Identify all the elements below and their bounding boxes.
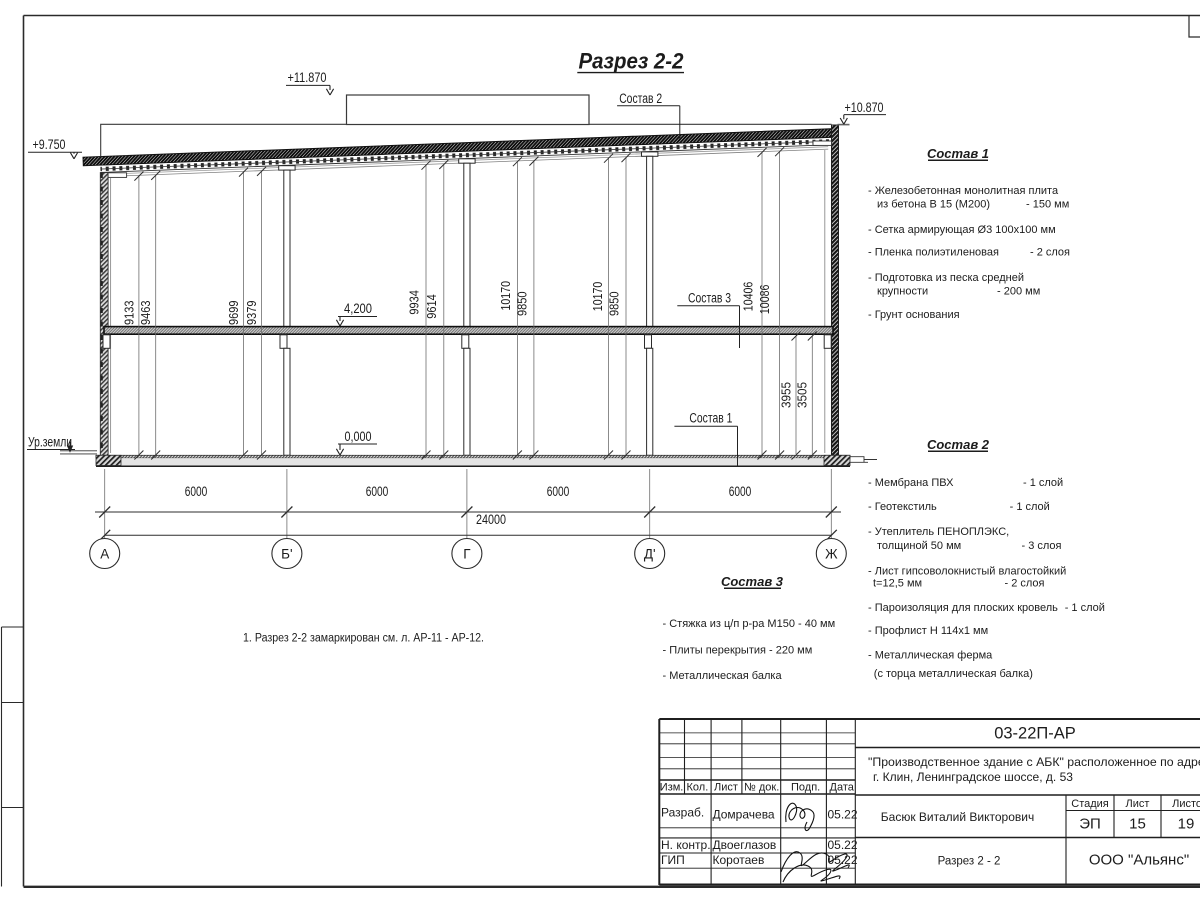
svg-text:Коротаев: Коротаев [713, 853, 765, 867]
svg-text:Стадия: Стадия [1071, 798, 1109, 810]
svg-text:- Металлическая ферма: - Металлическая ферма [868, 649, 993, 661]
svg-text:из бетона В 15 (М200): из бетона В 15 (М200) [877, 199, 990, 211]
svg-text:+10.870: +10.870 [845, 100, 884, 115]
svg-text:05.22: 05.22 [828, 838, 858, 852]
svg-text:- Профлист Н 114х1 мм: - Профлист Н 114х1 мм [868, 625, 988, 637]
svg-text:Лист: Лист [714, 782, 738, 794]
svg-text:10406: 10406 [741, 282, 756, 312]
svg-text:Состав 1: Состав 1 [927, 146, 989, 161]
svg-text:Подп.: Подп. [791, 782, 820, 794]
svg-text:9850: 9850 [515, 292, 530, 317]
svg-text:- 2 слоя: - 2 слоя [1030, 247, 1070, 259]
svg-text:- Пароизоляция для плоских кро: - Пароизоляция для плоских кровель [868, 602, 1058, 614]
svg-text:9699: 9699 [226, 301, 241, 326]
svg-text:9379: 9379 [244, 301, 259, 326]
svg-text:Изм.: Изм. [660, 782, 684, 794]
svg-text:Состав 1: Состав 1 [689, 410, 732, 425]
svg-text:Ж: Ж [825, 547, 838, 562]
svg-text:Кол.: Кол. [687, 782, 709, 794]
svg-text:6000: 6000 [185, 484, 208, 499]
svg-text:Лист: Лист [1126, 798, 1150, 810]
svg-text:9133: 9133 [121, 301, 136, 326]
svg-text:9614: 9614 [424, 294, 439, 319]
svg-text:05.22: 05.22 [828, 808, 858, 822]
svg-text:Состав 2: Состав 2 [619, 91, 662, 106]
svg-text:- 3 слоя: - 3 слоя [1022, 540, 1062, 552]
svg-text:4,200: 4,200 [344, 301, 372, 316]
svg-text:ГИП: ГИП [661, 853, 685, 867]
svg-text:1. Разрез 2-2 замаркирован см.: 1. Разрез 2-2 замаркирован см. л. АР-11 … [243, 633, 484, 645]
svg-text:№ док.: № док. [744, 782, 779, 794]
svg-text:3505: 3505 [795, 382, 810, 408]
svg-text:- Металлическая балка: - Металлическая балка [663, 670, 783, 682]
svg-text:- Плиты перекрытия - 220 мм: - Плиты перекрытия - 220 мм [663, 644, 813, 656]
svg-text:А: А [100, 547, 109, 562]
svg-text:- 1 слой: - 1 слой [1010, 501, 1050, 513]
svg-text:+11.870: +11.870 [288, 70, 327, 85]
svg-text:9934: 9934 [407, 290, 422, 315]
svg-text:- Стяжка из ц/п р-ра М150 - 40: - Стяжка из ц/п р-ра М150 - 40 мм [663, 618, 836, 630]
svg-text:Разраб.: Разраб. [661, 806, 704, 820]
svg-text:г. Клин, Ленинградское шоссе,: г. Клин, Ленинградское шоссе, д. 53 [873, 770, 1073, 784]
svg-text:6000: 6000 [366, 484, 389, 499]
svg-text:- Лист гипсоволокнистый влагос: - Лист гипсоволокнистый влагостойкий [868, 565, 1066, 577]
svg-text:6000: 6000 [547, 484, 570, 499]
svg-text:- Утеплитель ПЕНОПЛЭКС,: - Утеплитель ПЕНОПЛЭКС, [868, 526, 1009, 538]
svg-text:крупности: крупности [877, 286, 928, 298]
svg-text:Разрез 2-2: Разрез 2-2 [579, 49, 684, 74]
svg-text:Ур.земли: Ур.земли [28, 435, 72, 450]
svg-text:- Железобетонная монолитная п: - Железобетонная монолитная плита [868, 185, 1059, 197]
svg-text:Состав 3: Состав 3 [688, 291, 731, 306]
svg-text:- 200 мм: - 200 мм [997, 286, 1040, 298]
svg-text:03-22П-АР: 03-22П-АР [994, 725, 1076, 743]
svg-text:ООО "Альянс": ООО "Альянс" [1089, 852, 1189, 869]
svg-text:- 1 слой: - 1 слой [1023, 477, 1063, 489]
svg-text:- Подготовка из песка средней: - Подготовка из песка средней [868, 272, 1024, 284]
svg-text:(с торца металлическая балка): (с торца металлическая балка) [874, 668, 1033, 680]
svg-text:Разрез 2 - 2: Разрез 2 - 2 [938, 856, 1001, 868]
svg-text:24000: 24000 [476, 512, 506, 527]
svg-text:- 150 мм: - 150 мм [1026, 199, 1069, 211]
svg-text:"Производственное здание с АБК: "Производственное здание с АБК" располож… [868, 755, 1200, 769]
svg-text:10086: 10086 [757, 285, 772, 315]
svg-text:- Пленка полиэтиленовая: - Пленка полиэтиленовая [868, 247, 999, 259]
svg-text:+9.750: +9.750 [33, 137, 66, 152]
svg-text:Состав 3: Состав 3 [721, 574, 784, 589]
svg-text:Г: Г [463, 547, 471, 562]
svg-text:- Геотекстиль: - Геотекстиль [868, 501, 937, 513]
svg-text:Двоеглазов: Двоеглазов [713, 838, 777, 852]
svg-text:6000: 6000 [729, 484, 752, 499]
svg-text:0,000: 0,000 [345, 429, 372, 444]
svg-text:10170: 10170 [498, 281, 513, 311]
svg-text:9850: 9850 [607, 292, 622, 317]
svg-text:- 1 слой: - 1 слой [1065, 602, 1105, 614]
svg-text:ЭП: ЭП [1079, 816, 1101, 833]
svg-text:Б': Б' [281, 547, 292, 562]
svg-text:- Грунт основания: - Грунт основания [868, 309, 960, 321]
svg-text:19: 19 [1178, 816, 1195, 833]
svg-text:t=12,5 мм: t=12,5 мм [873, 578, 922, 590]
svg-text:Д': Д' [644, 547, 656, 562]
svg-text:9463: 9463 [138, 301, 153, 326]
svg-text:Басюк Виталий Викторович: Басюк Виталий Викторович [881, 810, 1034, 824]
svg-text:- 2 слоя: - 2 слоя [1005, 578, 1045, 590]
svg-text:толщиной 50 мм: толщиной 50 мм [877, 540, 961, 552]
svg-text:Состав 2: Состав 2 [927, 437, 990, 452]
svg-text:3955: 3955 [779, 382, 794, 408]
svg-text:10170: 10170 [590, 282, 605, 312]
svg-text:- Мембрана ПВХ: - Мембрана ПВХ [868, 477, 954, 489]
svg-text:Н. контр.: Н. контр. [661, 838, 711, 852]
svg-text:Домрачева: Домрачева [713, 808, 775, 822]
svg-text:15: 15 [1129, 816, 1146, 833]
svg-text:Листов: Листов [1172, 798, 1200, 810]
svg-text:Дата: Дата [830, 782, 855, 794]
svg-text:- Сетка армирующая Ø3 100х100: - Сетка армирующая Ø3 100х100 мм [868, 224, 1056, 236]
